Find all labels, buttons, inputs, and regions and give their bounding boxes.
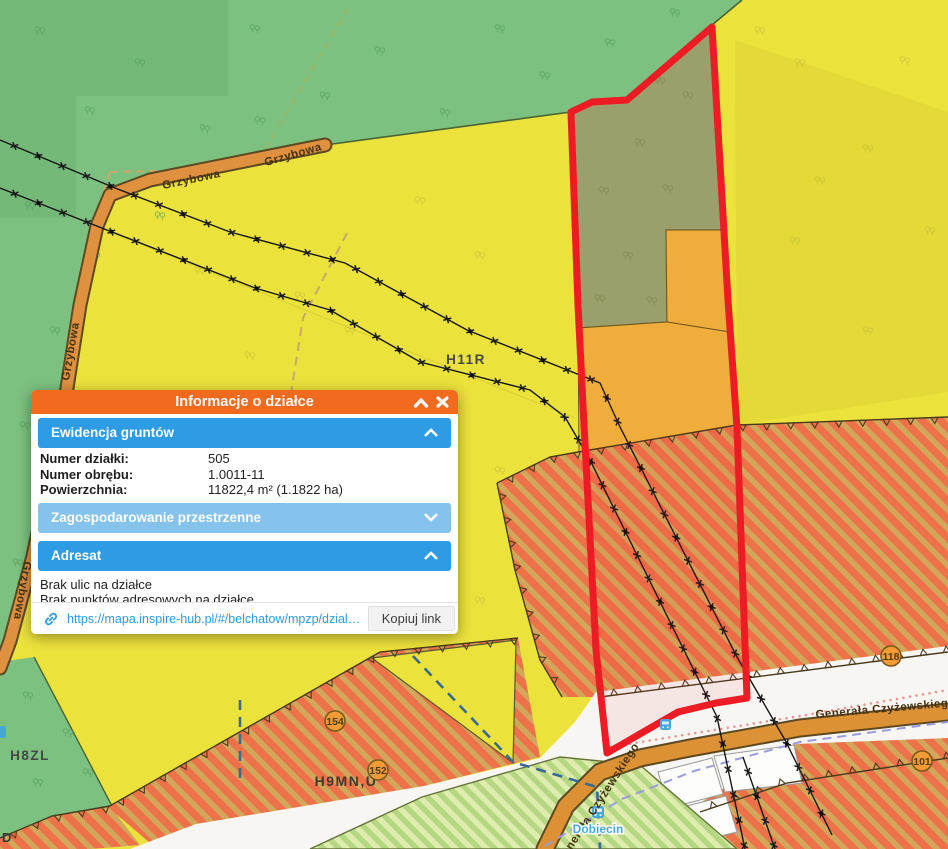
field-value: 1.0011-11 xyxy=(208,467,265,483)
road-badge-118: 118 xyxy=(881,646,901,666)
zone-label-h9mnu: H9MN,U xyxy=(315,773,378,789)
section-zagospodarowanie[interactable]: Zagospodarowanie przestrzenne xyxy=(38,503,451,533)
close-icon[interactable] xyxy=(436,396,449,408)
road-badge-154: 154 xyxy=(325,711,345,731)
chevron-up-icon[interactable] xyxy=(424,551,438,560)
svg-text:152: 152 xyxy=(369,765,387,777)
section-label: Ewidencja gruntów xyxy=(51,425,174,440)
address-line: Brak ulic na działce xyxy=(40,577,449,592)
field-row: Numer obrębu: 1.0011-11 xyxy=(40,467,451,483)
field-label: Powierzchnia: xyxy=(40,482,208,498)
map-viewport: H11R H8ZL H9MN,U Grzybowa Grzybowa Grzyb… xyxy=(0,0,948,849)
zone-label-h8zl: H8ZL xyxy=(10,748,50,763)
bus-stop-icon xyxy=(660,719,671,730)
section-ewidencja-gruntow[interactable]: Ewidencja gruntów xyxy=(38,418,451,448)
parcel-share-link[interactable]: https://mapa.inspire-hub.pl/#/belchatow/… xyxy=(67,612,362,626)
chevron-down-icon[interactable] xyxy=(424,513,438,522)
road-badge-152: 152 xyxy=(368,760,388,780)
section-adresat[interactable]: Adresat xyxy=(38,541,451,571)
bus-stop-icon xyxy=(0,726,6,738)
field-row: Powierzchnia: 11822,4 m² (1.1822 ha) xyxy=(40,482,451,498)
section-label: Zagospodarowanie przestrzenne xyxy=(51,510,261,525)
field-value: 11822,4 m² (1.1822 ha) xyxy=(208,482,343,498)
popup-title: Informacje o działce xyxy=(175,394,314,410)
chevron-up-icon[interactable] xyxy=(424,428,438,437)
field-label: Numer obrębu: xyxy=(40,467,208,483)
svg-text:118: 118 xyxy=(883,651,900,663)
svg-text:154: 154 xyxy=(326,716,344,728)
section-label: Adresat xyxy=(51,548,101,563)
selected-parcel-outline xyxy=(571,27,747,753)
copy-link-button[interactable]: Kopiuj link xyxy=(368,606,455,631)
parcel-fields: Numer działki: 505 Numer obrębu: 1.0011-… xyxy=(40,451,451,498)
parcel-info-popup: Informacje o działce Ewidencja gruntów N… xyxy=(31,390,458,634)
road-badge-101: 101 xyxy=(912,751,932,771)
field-row: Numer działki: 505 xyxy=(40,451,451,467)
edge-label-fragment: D xyxy=(2,830,11,845)
popup-footer: https://mapa.inspire-hub.pl/#/belchatow/… xyxy=(31,602,458,634)
chevron-up-icon[interactable] xyxy=(413,397,429,408)
popup-title-bar[interactable]: Informacje o działce xyxy=(31,390,458,414)
svg-text:101: 101 xyxy=(913,756,931,768)
field-label: Numer działki: xyxy=(40,451,208,467)
bus-stop-label: Dobiecin xyxy=(573,822,624,836)
zone-label-h11r: H11R xyxy=(446,352,486,367)
field-value: 505 xyxy=(208,451,230,467)
link-icon xyxy=(43,611,59,627)
